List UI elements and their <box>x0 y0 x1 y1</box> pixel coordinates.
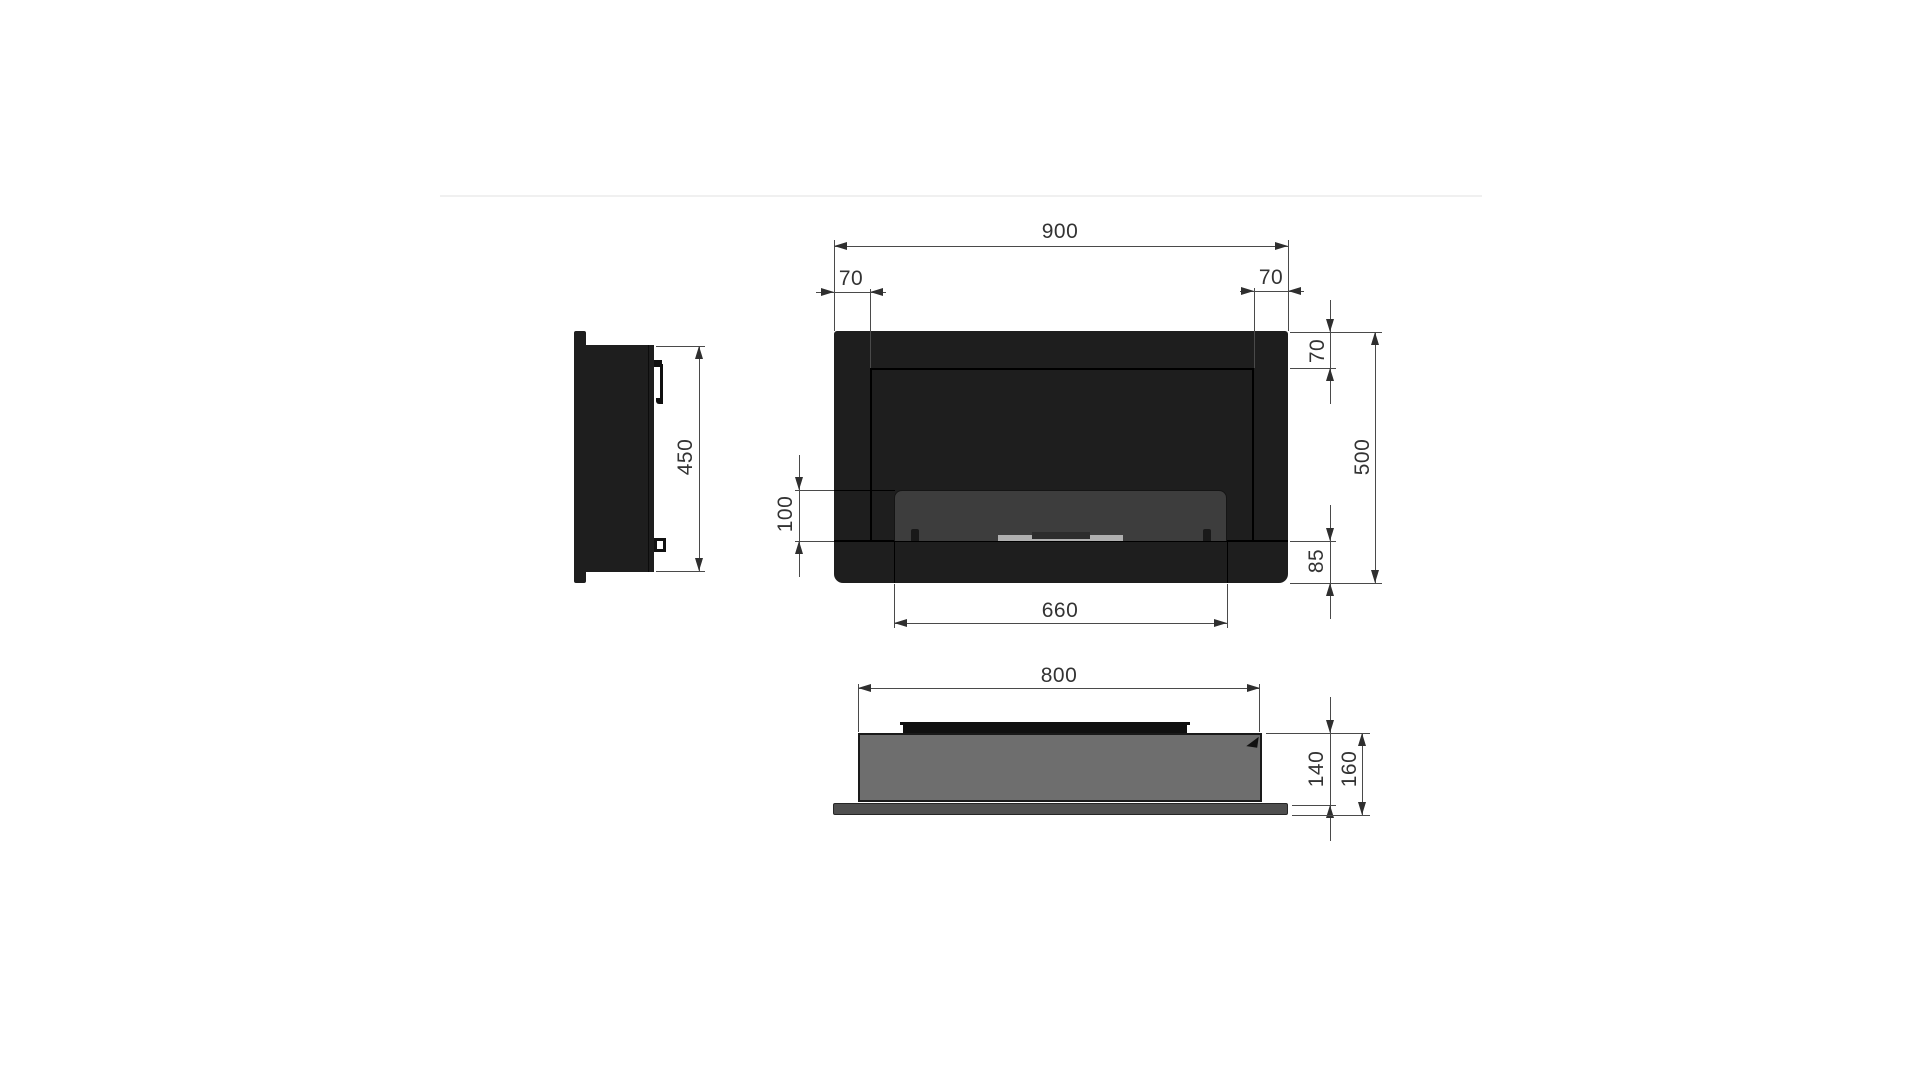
dim-160-arrow-bottom <box>1358 802 1366 815</box>
dim-800-arrow-left <box>858 684 871 692</box>
dim-800-arrow-right <box>1247 684 1260 692</box>
dim-140-arrow-top <box>1326 720 1334 733</box>
dim-label-bottom-width: 800 <box>1041 664 1078 688</box>
bottom-corner-mark <box>1246 735 1258 747</box>
dim-160-arrow-top <box>1358 733 1366 746</box>
dim-140-line <box>1330 697 1331 841</box>
dim-140-arrow-bottom <box>1326 805 1334 818</box>
technical-drawing-canvas: 450 900 70 70 <box>0 0 1920 1080</box>
dim-label-total-depth: 160 <box>1338 751 1362 788</box>
dim-160-ext-bottom <box>1292 815 1370 816</box>
bottom-view: 800 140 160 <box>0 0 1920 1080</box>
dim-140-ext-top <box>1266 733 1370 734</box>
dim-label-body-depth: 140 <box>1305 751 1329 788</box>
bottom-housing-box <box>858 733 1262 802</box>
dim-800-line <box>858 688 1260 689</box>
bottom-frame-plate <box>833 803 1288 815</box>
